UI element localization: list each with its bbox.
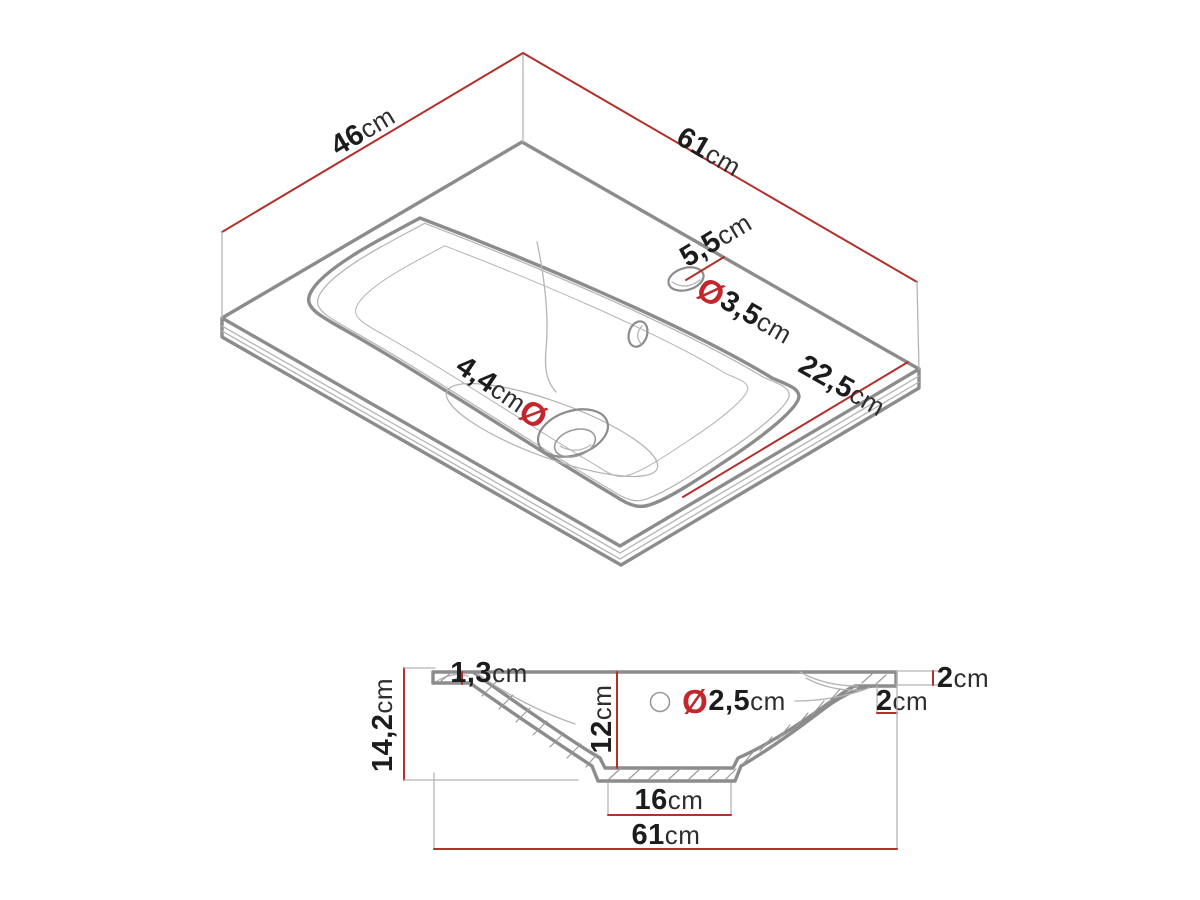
dimension-basin-depth: 12cm bbox=[586, 672, 618, 768]
faucet-offset-label: 5,5cm bbox=[675, 206, 758, 273]
dimension-total-width: 61cm bbox=[434, 671, 897, 851]
total-height-label: 14,2cm bbox=[367, 678, 399, 772]
drain-base-label: 16cm bbox=[635, 784, 704, 816]
mounting-edge-label: 2cm bbox=[876, 685, 928, 717]
rim-edge-label: 2cm bbox=[937, 662, 989, 694]
countertop-top-face bbox=[222, 142, 919, 546]
dimension-width-61: 61cm bbox=[523, 53, 919, 369]
dimension-rim-thickness: 1,3cm bbox=[450, 657, 528, 689]
washbasin-dimension-diagram: 46cm 61cm 5,5cm Ø3,5cm 4,4c bbox=[0, 0, 1200, 900]
faucet-diameter-label: Ø3,5cm bbox=[691, 269, 799, 353]
rim-thickness-label: 1,3cm bbox=[450, 657, 528, 689]
overflow-hole-symbol bbox=[651, 693, 670, 712]
total-width-label: 61cm bbox=[632, 819, 701, 851]
section-view: 14,2cm 1,3cm 12cm Ø2,5cm bbox=[367, 657, 989, 851]
width-label: 61cm bbox=[671, 121, 747, 183]
front-edge-dimension-line bbox=[683, 362, 908, 497]
hatch-marks bbox=[441, 672, 886, 779]
diagram-canvas: 46cm 61cm 5,5cm Ø3,5cm 4,4c bbox=[0, 0, 1200, 900]
basin-depth-label: 12cm bbox=[586, 685, 618, 754]
overflow-diameter-label: Ø2,5cm bbox=[682, 683, 786, 720]
section-profile bbox=[433, 672, 896, 781]
top-view: 46cm 61cm 5,5cm Ø3,5cm 4,4c bbox=[222, 53, 919, 565]
width-extension-line bbox=[917, 282, 919, 369]
dimension-drain-base: 16cm bbox=[608, 783, 731, 816]
depth-label: 46cm bbox=[325, 100, 401, 163]
dimension-depth-46: 46cm bbox=[222, 53, 523, 318]
dimension-front-edge: 22,5cm bbox=[683, 349, 908, 497]
bowl bbox=[309, 218, 799, 506]
dimension-overflow-diameter: Ø2,5cm bbox=[651, 683, 786, 720]
front-edge-label: 22,5cm bbox=[793, 349, 891, 423]
dimension-faucet-diameter: Ø3,5cm bbox=[691, 269, 799, 353]
bowl-outer-rim bbox=[309, 218, 799, 506]
dimension-mounting-edge: 2cm bbox=[876, 685, 928, 717]
